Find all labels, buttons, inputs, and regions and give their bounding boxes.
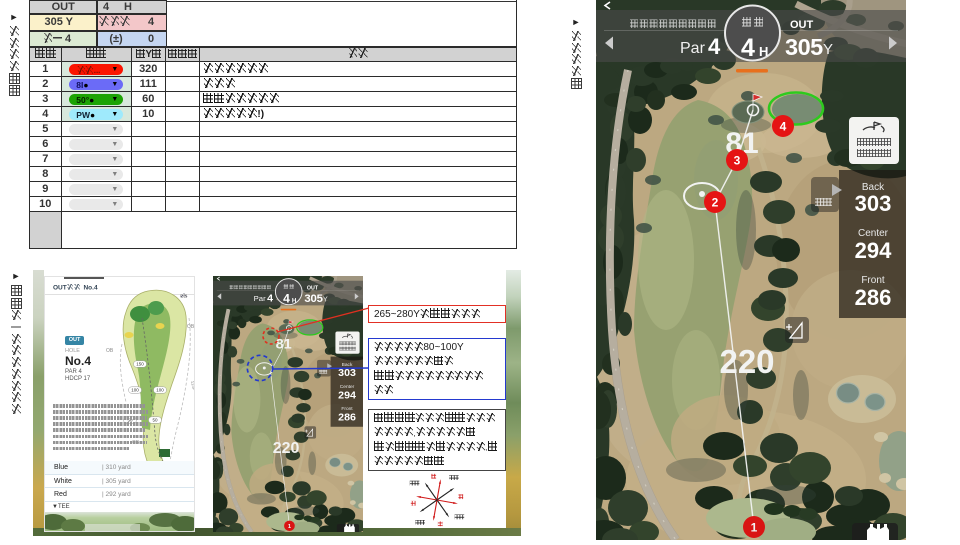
svg-text:4: 4 <box>780 120 787 134</box>
svg-text:3: 3 <box>734 154 741 168</box>
svg-text:OB: OB <box>180 294 188 300</box>
svg-text:OB: OB <box>187 324 194 330</box>
svg-text:OB: OB <box>106 348 114 354</box>
svg-text:50: 50 <box>152 418 158 423</box>
svg-text:2: 2 <box>712 196 719 210</box>
svg-text:150: 150 <box>136 362 144 367</box>
svg-text:100: 100 <box>131 388 139 393</box>
svg-text:114P: 114P <box>190 380 194 391</box>
svg-text:100: 100 <box>156 388 164 393</box>
